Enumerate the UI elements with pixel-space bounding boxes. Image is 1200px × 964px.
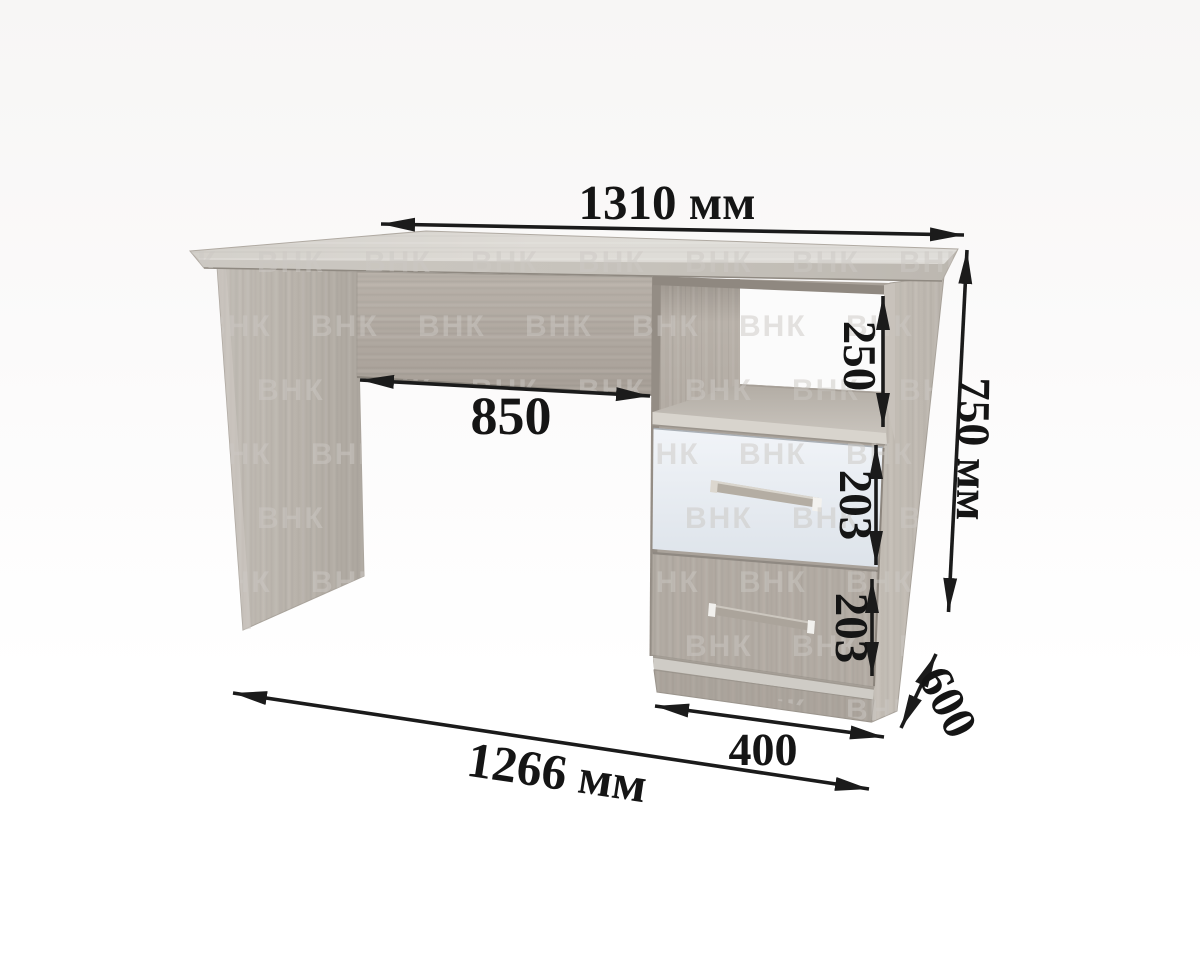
svg-text:ВНК: ВНК: [418, 310, 486, 343]
svg-text:ВНК: ВНК: [525, 310, 593, 343]
svg-text:ВНК: ВНК: [632, 310, 700, 343]
svg-text:ВНК: ВНК: [685, 630, 753, 663]
svg-text:ВНК: ВНК: [739, 438, 807, 471]
svg-text:ВНК: ВНК: [364, 246, 432, 279]
svg-text:1310 мм: 1310 мм: [578, 175, 755, 230]
svg-text:250: 250: [833, 321, 885, 392]
svg-text:ВНК: ВНК: [846, 438, 914, 471]
svg-text:ВНК: ВНК: [792, 246, 860, 279]
svg-text:ВНК: ВНК: [685, 502, 753, 535]
svg-text:ВНК: ВНК: [578, 246, 646, 279]
svg-text:850: 850: [471, 386, 552, 446]
svg-text:ВНК: ВНК: [257, 374, 325, 407]
svg-text:ВНК: ВНК: [311, 310, 379, 343]
svg-text:ВНК: ВНК: [685, 246, 753, 279]
svg-text:203: 203: [829, 470, 881, 541]
svg-text:ВНК: ВНК: [257, 502, 325, 535]
svg-text:ВНК: ВНК: [739, 566, 807, 599]
svg-text:400: 400: [729, 724, 798, 775]
svg-text:203: 203: [825, 593, 877, 664]
svg-text:ВНК: ВНК: [685, 374, 753, 407]
svg-text:ВНК: ВНК: [739, 310, 807, 343]
svg-text:ВНК: ВНК: [257, 246, 325, 279]
svg-text:750 мм: 750 мм: [947, 377, 1000, 521]
